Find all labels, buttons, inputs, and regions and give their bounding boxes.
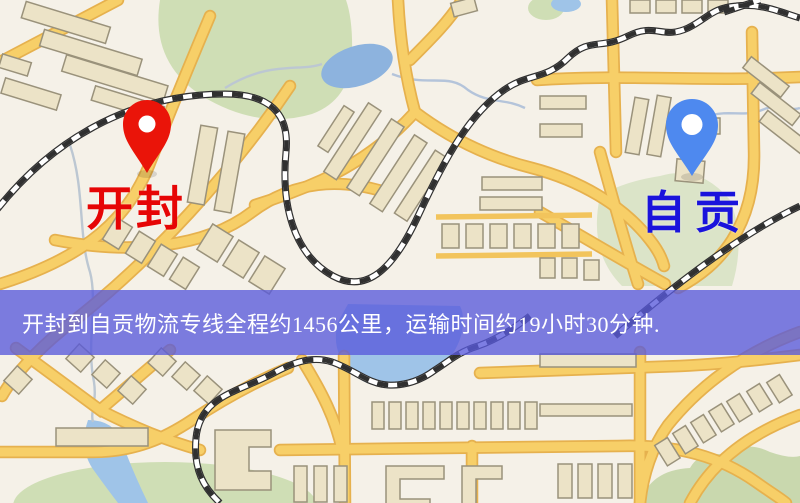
route-banner: 开封到自贡物流专线全程约1456公里，运输时间约19小时30分钟. (0, 290, 800, 355)
destination-city-label: 自贡 (641, 176, 749, 241)
map-graphic (0, 0, 800, 503)
destination-pin-icon (666, 99, 718, 181)
route-banner-text: 开封到自贡物流专线全程约1456公里，运输时间约19小时30分钟. (22, 307, 660, 339)
origin-city-label: 开封 (86, 170, 186, 239)
origin-pin-icon (123, 100, 171, 178)
route-map: 开封 自贡 开封到自贡物流专线全程约1456公里，运输时间约19小时30分钟. (0, 0, 800, 503)
